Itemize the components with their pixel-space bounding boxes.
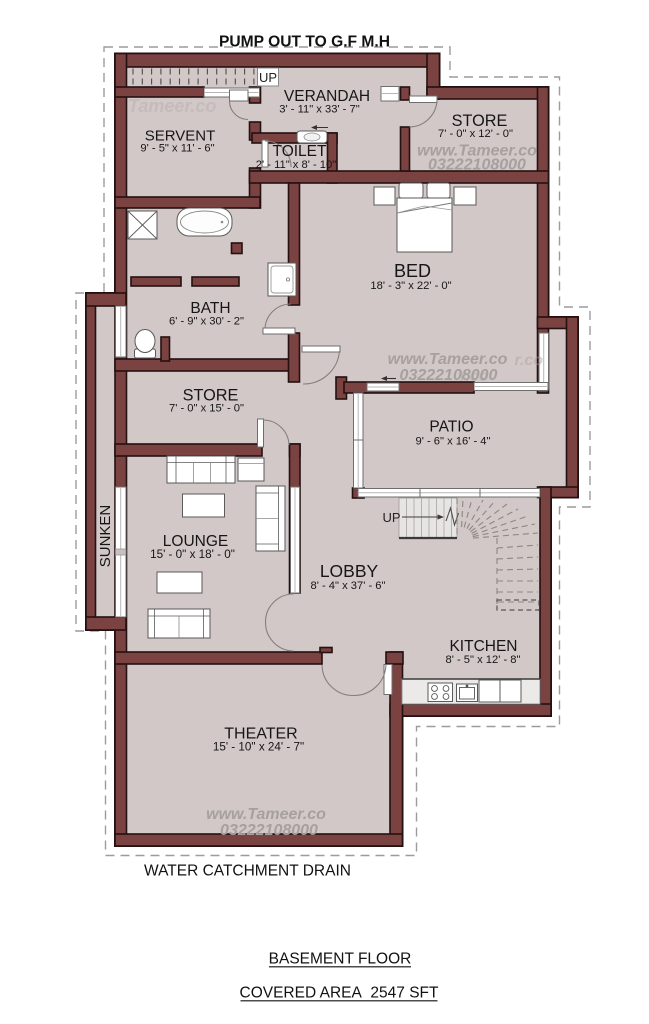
svg-text:7' - 0" x 15' - 0": 7' - 0" x 15' - 0"	[169, 403, 244, 415]
svg-text:8' - 5" x 12' - 8": 8' - 5" x 12' - 8"	[445, 654, 520, 666]
svg-text:LOBBY: LOBBY	[320, 561, 379, 581]
svg-text:2' - 11" x 8' - 10": 2' - 11" x 8' - 10"	[256, 159, 336, 171]
svg-text:9' - 6" x 16' - 4": 9' - 6" x 16' - 4"	[415, 436, 490, 448]
svg-text:BASEMENT FLOOR: BASEMENT FLOOR	[269, 951, 412, 968]
svg-text:PATIO: PATIO	[429, 419, 473, 436]
svg-text:18' - 3" x 22' - 0": 18' - 3" x 22' - 0"	[370, 280, 451, 292]
svg-text:8' - 4" x 37' - 6": 8' - 4" x 37' - 6"	[310, 580, 385, 592]
svg-text:r.co: r.co	[460, 368, 489, 385]
svg-text:15' - 0" x 18' - 0": 15' - 0" x 18' - 0"	[150, 548, 235, 561]
svg-text:KITCHEN: KITCHEN	[449, 638, 517, 655]
svg-text:www.Tameer.co: www.Tameer.co	[206, 806, 326, 823]
svg-text:BED: BED	[394, 261, 431, 281]
svg-text:6' - 9" x 30' - 2": 6' - 9" x 30' - 2"	[169, 316, 244, 328]
svg-text:www.Tameer.co: www.Tameer.co	[388, 351, 508, 368]
svg-text:VERANDAH: VERANDAH	[284, 88, 370, 105]
svg-text:03222108000: 03222108000	[220, 822, 318, 839]
svg-text:r.co: r.co	[515, 352, 544, 369]
svg-text:UP: UP	[259, 70, 277, 85]
svg-text:9' - 5" x 11' - 6": 9' - 5" x 11' - 6"	[140, 143, 214, 155]
svg-text:BATH: BATH	[190, 300, 230, 317]
svg-text:SUNKEN: SUNKEN	[97, 505, 114, 568]
svg-text:PUMP OUT TO G.F M.H: PUMP OUT TO G.F M.H	[219, 34, 390, 51]
svg-text:03222108000: 03222108000	[428, 157, 526, 174]
svg-text:TOILET: TOILET	[273, 143, 328, 160]
svg-text:15' - 10" x 24' - 7": 15' - 10" x 24' - 7"	[213, 741, 304, 754]
svg-text:UP: UP	[382, 510, 400, 525]
svg-text:Tameer.co: Tameer.co	[128, 96, 216, 116]
svg-text:COVERED AREA 2547 SFT: COVERED AREA 2547 SFT	[240, 985, 440, 1002]
svg-text:3' - 11" x 33' - 7": 3' - 11" x 33' - 7"	[279, 104, 359, 116]
svg-text:7' - 0" x 12' - 0": 7' - 0" x 12' - 0"	[438, 128, 513, 140]
svg-text:WATER CATCHMENT DRAIN: WATER CATCHMENT DRAIN	[144, 863, 351, 880]
